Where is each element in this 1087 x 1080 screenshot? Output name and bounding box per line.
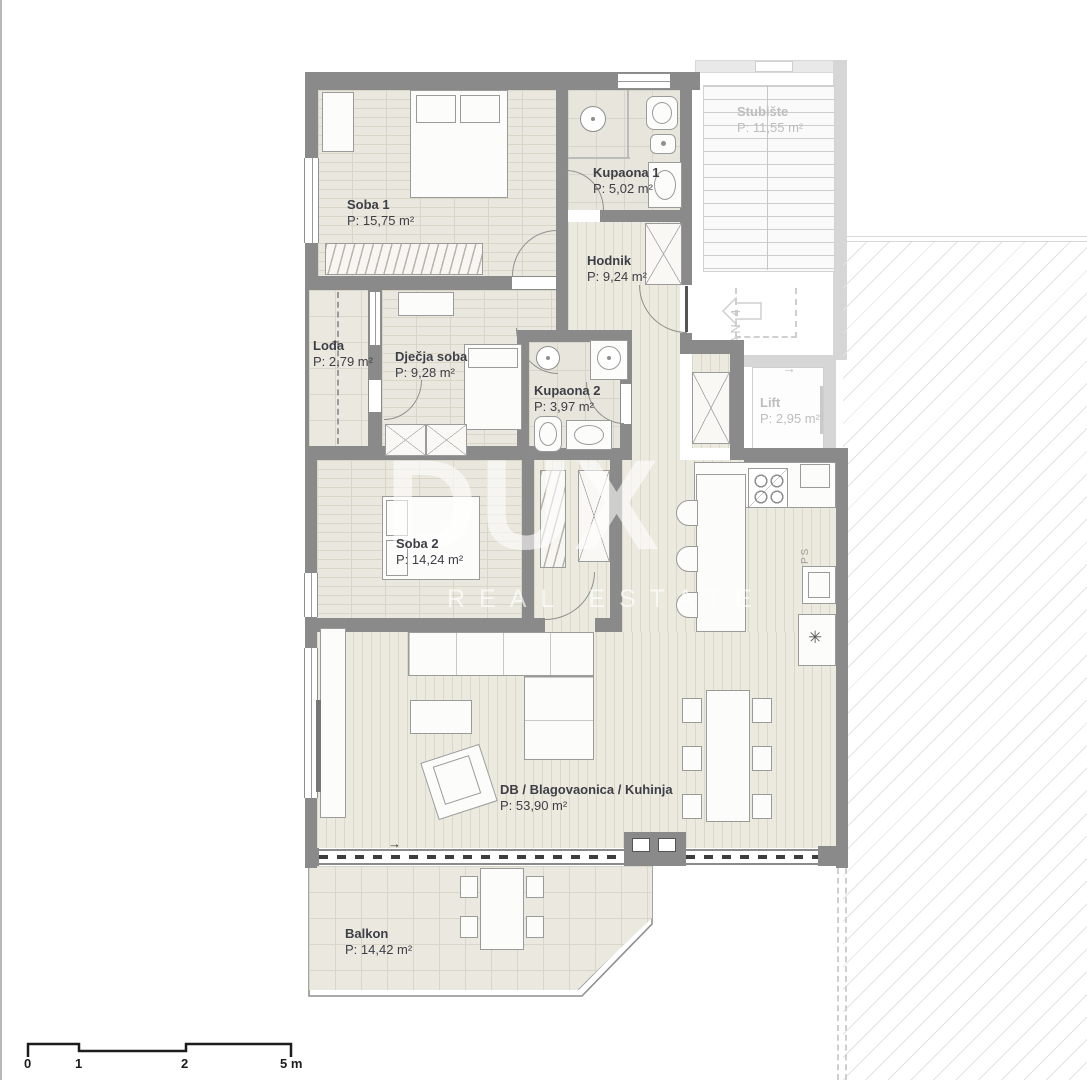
boundary-dashed-line-1 (837, 868, 839, 1080)
scale-tick-1: 1 (75, 1056, 82, 1071)
balkon-table (480, 868, 524, 950)
hodnik-wardrobe (645, 223, 682, 285)
stairwell-window (755, 61, 793, 72)
room-label-soba1: Soba 1 P: 15,75 m² (347, 197, 414, 229)
living-window-band (686, 849, 818, 865)
room-area: P: 11,55 m² (737, 120, 803, 136)
balkon-sliding-door (319, 849, 624, 865)
wall-living-top-stub (595, 618, 622, 632)
watermark-subtitle: REAL ESTATE (447, 585, 766, 614)
room-name: Kupaona 1 (593, 165, 659, 181)
stove-icon (748, 468, 788, 508)
room-area: P: 14,42 m² (345, 942, 412, 958)
tv-cabinet (320, 628, 346, 818)
wall-bottom-left-corner (305, 848, 319, 866)
djecja-pillow (468, 348, 518, 368)
sofa-vertical (524, 676, 594, 760)
page-edge-line (0, 0, 2, 1080)
soba1-window (304, 158, 319, 243)
djecja-floor-patch (517, 290, 556, 330)
dining-chair-3 (682, 794, 702, 819)
room-name: Stubište (737, 104, 803, 120)
dining-chair-4 (752, 698, 772, 723)
scale-tick-2: 2 (181, 1056, 188, 1071)
entrance-door-leaf (685, 286, 688, 332)
room-area: P: 3,97 m² (534, 399, 600, 415)
room-area: P: 9,28 m² (395, 365, 467, 381)
lift-door-line (820, 386, 823, 434)
room-name: Lift (760, 395, 820, 411)
neighbour-hatch-area (843, 242, 1087, 1080)
kupaona1-shower-line-h (568, 157, 630, 159)
bar-stool-1 (676, 500, 698, 526)
room-name: Balkon (345, 926, 412, 942)
wall-hall-djecja (556, 290, 568, 330)
dining-chair-1 (682, 698, 702, 723)
scale-tick-0: 0 (24, 1056, 31, 1071)
room-label-kupaona1: Kupaona 1 P: 5,02 m² (593, 165, 659, 197)
shaft-label: PS (800, 536, 811, 564)
wall-kupaona1-bottom (600, 210, 680, 222)
bar-stool-2 (676, 546, 698, 572)
tv-icon (316, 700, 321, 792)
room-name: Hodnik (587, 253, 647, 269)
room-label-lodja: Lođa P: 2,79 m² (313, 338, 373, 370)
lift-right-wall (824, 355, 836, 460)
kitchen-sink (800, 464, 830, 488)
toilet-1-bowl (652, 102, 672, 124)
room-label-djecja: Dječja soba P: 9,28 m² (395, 349, 467, 381)
kupaona1-shower-line-v (627, 90, 629, 159)
room-name: Dječja soba (395, 349, 467, 365)
balkon-chair-1 (460, 876, 478, 898)
room-label-balkon: Balkon P: 14,42 m² (345, 926, 412, 958)
dining-chair-2 (682, 746, 702, 771)
boiler-icon: ✳ (808, 628, 822, 648)
soba1-door-gap (512, 277, 556, 289)
balkon-chair-2 (526, 876, 544, 898)
room-area: P: 53,90 m² (500, 798, 673, 814)
soba1-wardrobe (325, 243, 483, 275)
dining-chair-6 (752, 794, 772, 819)
room-label-stubiste: Stubište P: 11,55 m² (737, 104, 803, 136)
lodja-door-gap (369, 380, 381, 412)
room-label-kupaona2: Kupaona 2 P: 3,97 m² (534, 383, 600, 415)
fridge-inner (808, 572, 830, 598)
room-area: P: 2,79 m² (313, 354, 373, 370)
balkon-chair-3 (460, 916, 478, 938)
coffee-table (410, 700, 472, 734)
hodnik-niche-wardrobe (692, 372, 730, 444)
floor-plan-page: → STAN 4 (0, 0, 1087, 1080)
lodja-outer-edge (305, 283, 309, 460)
room-name: Kupaona 2 (534, 383, 600, 399)
pillar-detail-2 (658, 838, 676, 852)
djecja-desk (398, 292, 454, 316)
room-area: P: 5,02 m² (593, 181, 659, 197)
room-label-lift: Lift P: 2,95 m² (760, 395, 820, 427)
boundary-dashed-line-2 (845, 868, 847, 1080)
room-area: P: 15,75 m² (347, 213, 414, 229)
room-label-dnevni: DB / Blagovaonica / Kuhinja P: 53,90 m² (500, 782, 673, 814)
wall-below-lift (744, 448, 848, 462)
scale-bar (28, 1044, 291, 1057)
landing-dashed-zone (735, 288, 797, 338)
bidet-dot (661, 141, 666, 146)
balkon-chair-4 (526, 916, 544, 938)
room-label-soba2: Soba 2 P: 14,24 m² (396, 536, 463, 568)
balkon-entry-arrow-icon: → (388, 836, 401, 851)
soba2-window (304, 573, 318, 617)
room-label-hodnik: Hodnik P: 9,24 m² (587, 253, 647, 285)
wall-right-lower (836, 448, 848, 868)
kupaona1-window (618, 73, 670, 89)
lift-direction-arrow-icon: → (782, 360, 796, 376)
dining-chair-5 (752, 746, 772, 771)
room-name: Lođa (313, 338, 373, 354)
soba1-pillow-1 (416, 95, 456, 123)
room-area: P: 2,95 m² (760, 411, 820, 427)
soba1-pillow-2 (460, 95, 500, 123)
dining-table (706, 690, 750, 822)
washer-dot (607, 356, 611, 360)
pillar-detail-1 (632, 838, 650, 852)
shower-head-dot (591, 117, 595, 121)
shower-head-2-dot (546, 356, 550, 360)
room-name: Soba 1 (347, 197, 414, 213)
scale-tick-5m: 5 m (280, 1056, 302, 1071)
room-area: P: 9,24 m² (587, 269, 647, 285)
sofa-horizontal (408, 632, 594, 676)
wall-lift-left (730, 352, 744, 460)
room-name: Soba 2 (396, 536, 463, 552)
room-area: P: 14,24 m² (396, 552, 463, 568)
room-name: DB / Blagovaonica / Kuhinja (500, 782, 673, 798)
wall-bottom-right-corner (818, 846, 848, 866)
soba1-closet (322, 92, 354, 152)
